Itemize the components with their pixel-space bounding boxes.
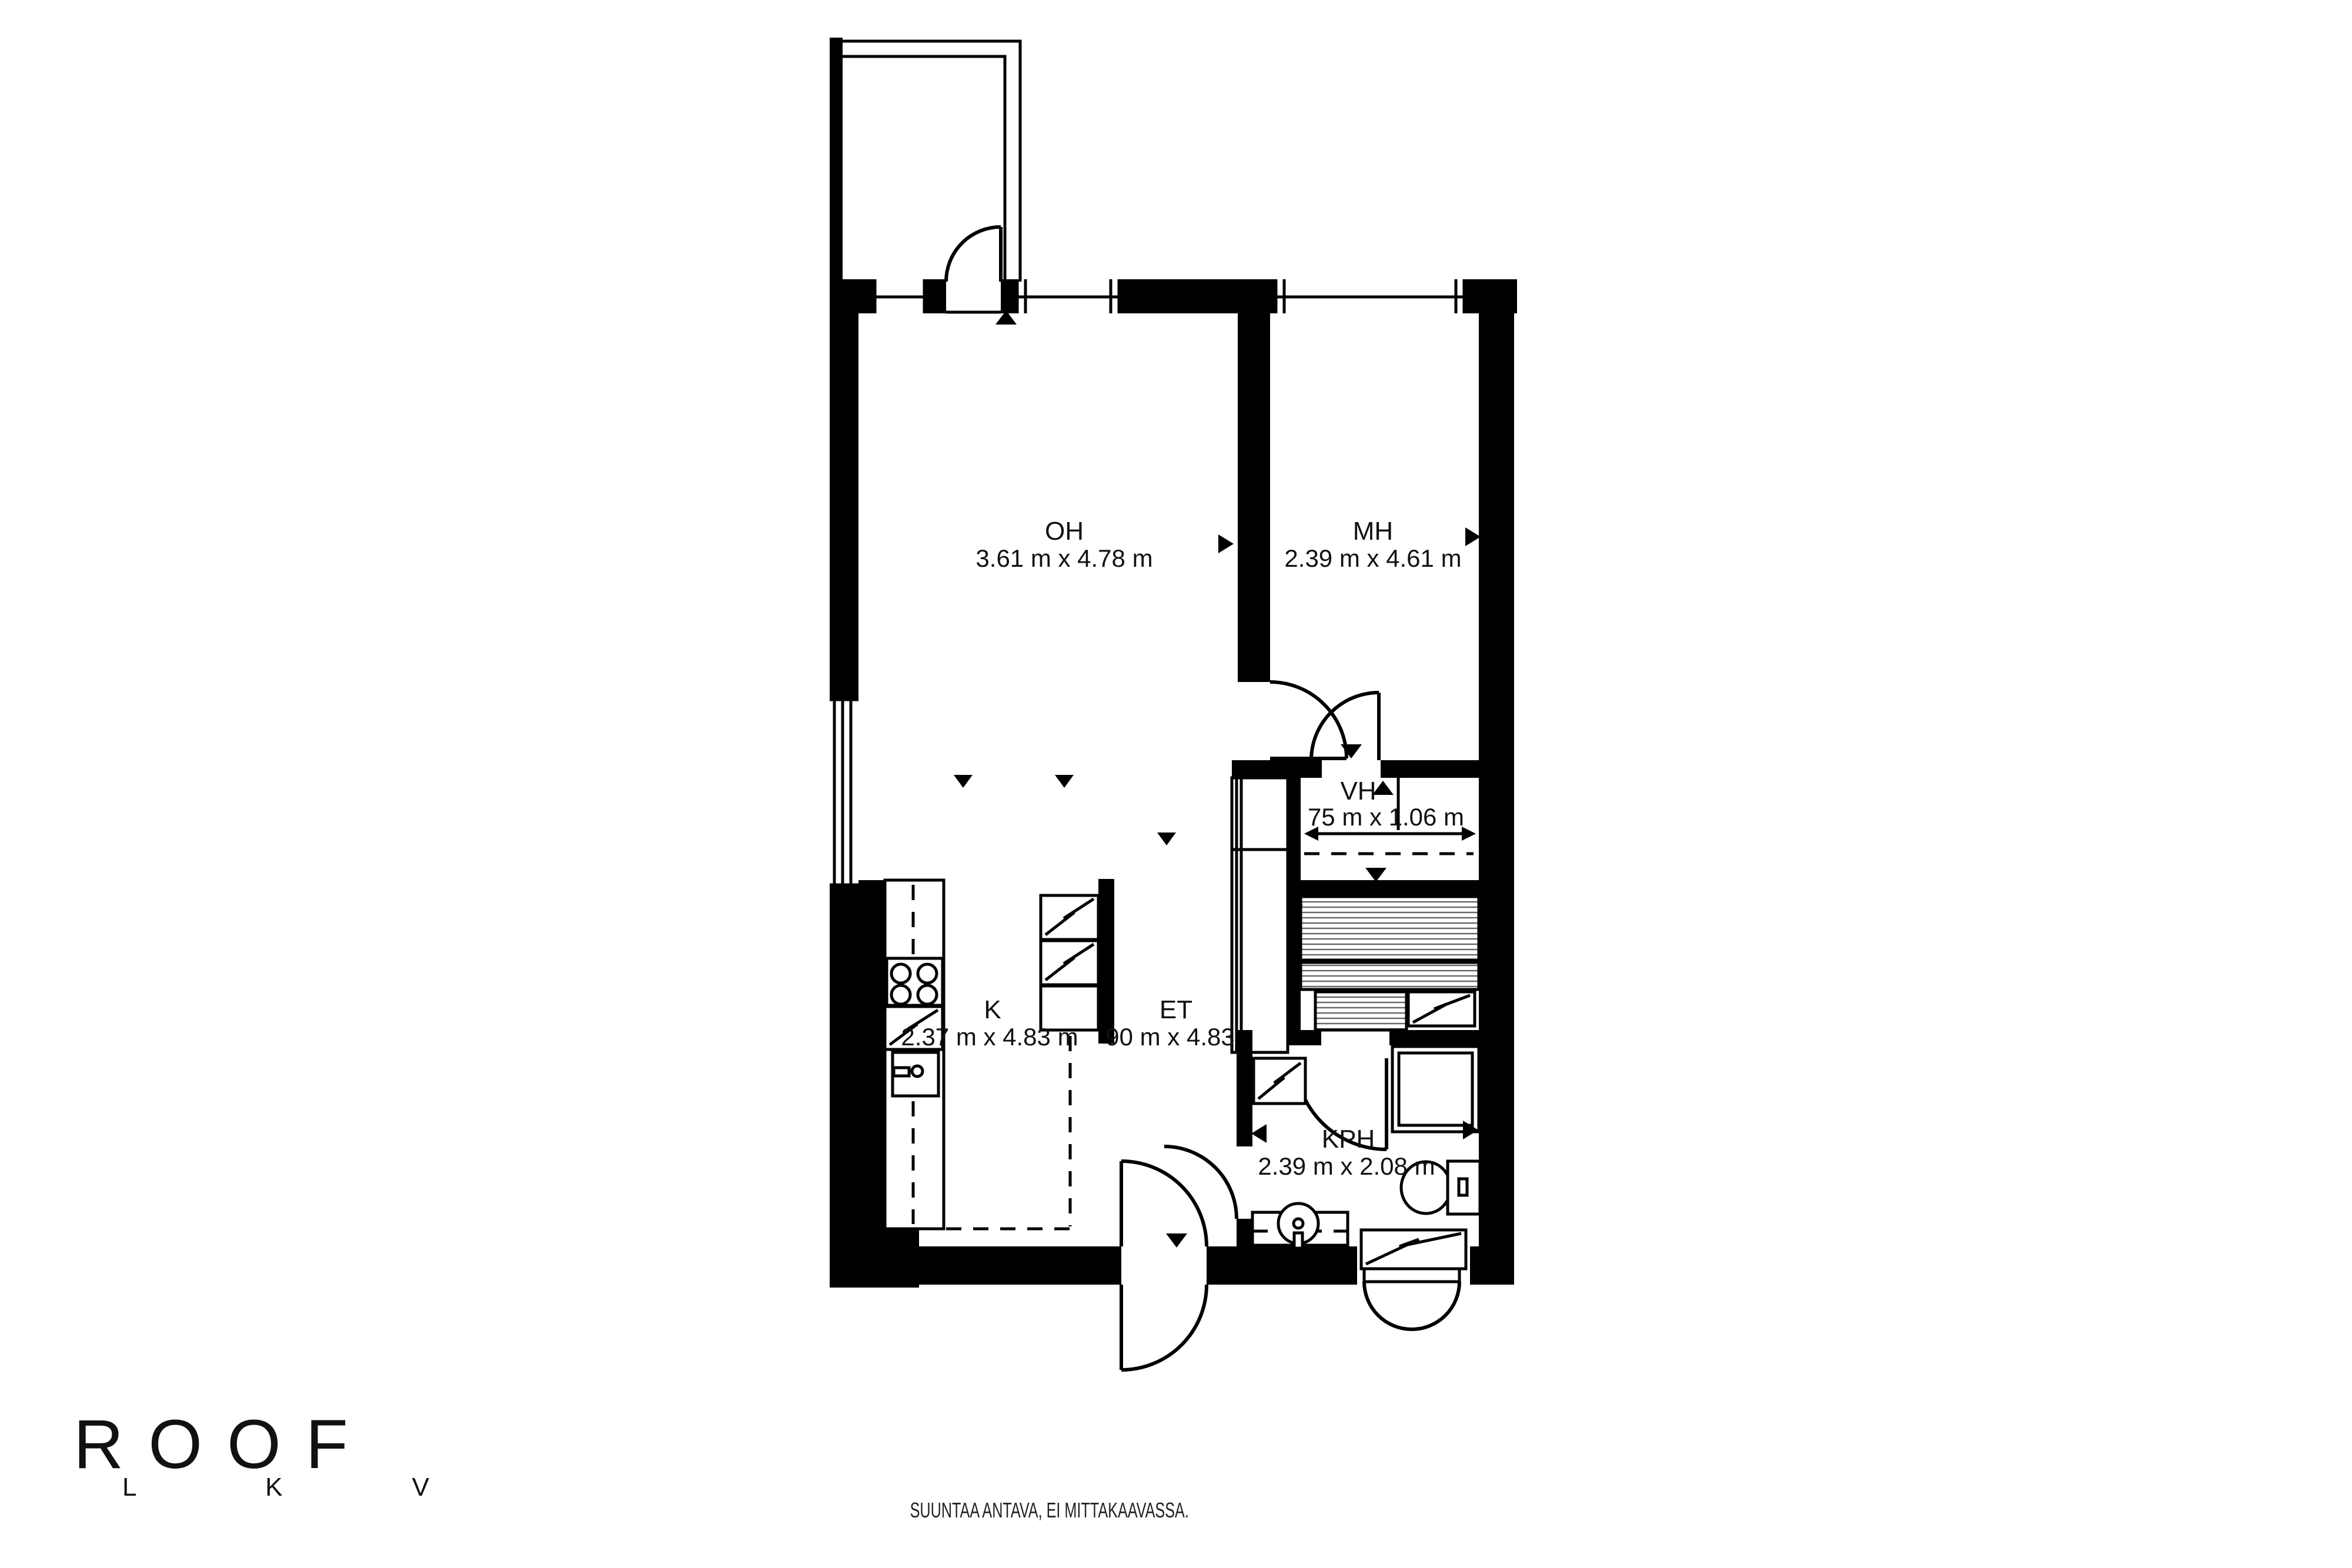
room-label-mh: MH: [1353, 517, 1393, 546]
arrow-down-icon: [1157, 833, 1176, 845]
room-dims-oh: 3.61 m x 4.78 m: [975, 544, 1152, 572]
shower-icon: [1392, 1047, 1479, 1132]
roof-logo: ROOF: [73, 1410, 373, 1479]
kitchen-fixtures: [885, 880, 1098, 1229]
arrow-down-icon: [1166, 1233, 1187, 1248]
room-label-et: ET: [1160, 995, 1192, 1024]
room-label-kph: KPH: [1322, 1125, 1375, 1154]
balcony-glazing: [843, 41, 1020, 282]
room-dims-mh: 2.39 m x 4.61 m: [1284, 544, 1461, 572]
direction-marks: [954, 310, 1481, 1248]
arrow-down-icon: [1055, 775, 1074, 788]
hallway-door-arc: [1164, 1146, 1237, 1219]
room-dims-k: 2.37 m x 4.83 m: [901, 1023, 1078, 1051]
sink-icon: [893, 1052, 938, 1096]
disclaimer-text: SUUNTAA ANTAVA, EI MITTAKAAVASSA.: [844, 1498, 1255, 1523]
floor-plan-svg: OH 3.61 m x 4.78 m MH 2.39 m x 4.61 m VH…: [0, 0, 2352, 1568]
hall-wardrobes: [1232, 778, 1288, 1052]
arrow-right-icon: [1218, 534, 1234, 553]
room-label-vh: VH: [1340, 777, 1376, 805]
roof-logo-lkv: L K V: [122, 1475, 490, 1500]
room-labels: OH 3.61 m x 4.78 m MH 2.39 m x 4.61 m VH…: [901, 517, 1464, 1180]
arrow-down-icon: [1365, 868, 1387, 882]
closet-hatch: [1301, 962, 1479, 989]
closet-hatch: [1315, 992, 1406, 1030]
room-label-k: K: [984, 995, 1001, 1024]
room-dims-kph: 2.39 m x 2.08 m: [1258, 1152, 1435, 1180]
floor-plan-page: OH 3.61 m x 4.78 m MH 2.39 m x 4.61 m VH…: [0, 0, 2352, 1568]
alcove-door-right-arc: [1412, 1282, 1459, 1329]
room-dims-et: 90 m x 4.83: [1105, 1023, 1234, 1051]
arrow-right-icon: [1463, 1121, 1478, 1139]
arrow-down-icon: [954, 775, 973, 788]
alcove-door-left-arc: [1364, 1282, 1412, 1329]
arrow-left-icon: [1251, 1124, 1267, 1143]
room-dims-vh: 75 m x 1.06 m: [1308, 803, 1464, 831]
entry-outer-door-arc: [1121, 1285, 1207, 1370]
balcony-door-arc: [946, 227, 1001, 282]
room-label-oh: OH: [1045, 517, 1084, 546]
entry-door-arc: [1121, 1161, 1207, 1246]
arrow-right-icon: [1465, 527, 1481, 546]
balcony: [843, 41, 1020, 282]
hall-door-arc: [1270, 682, 1347, 758]
faucet-icon: [1294, 1233, 1302, 1248]
closet-hatch: [1301, 897, 1479, 960]
alcove-sill: [1364, 1269, 1459, 1282]
utility-area: [1301, 897, 1479, 1030]
